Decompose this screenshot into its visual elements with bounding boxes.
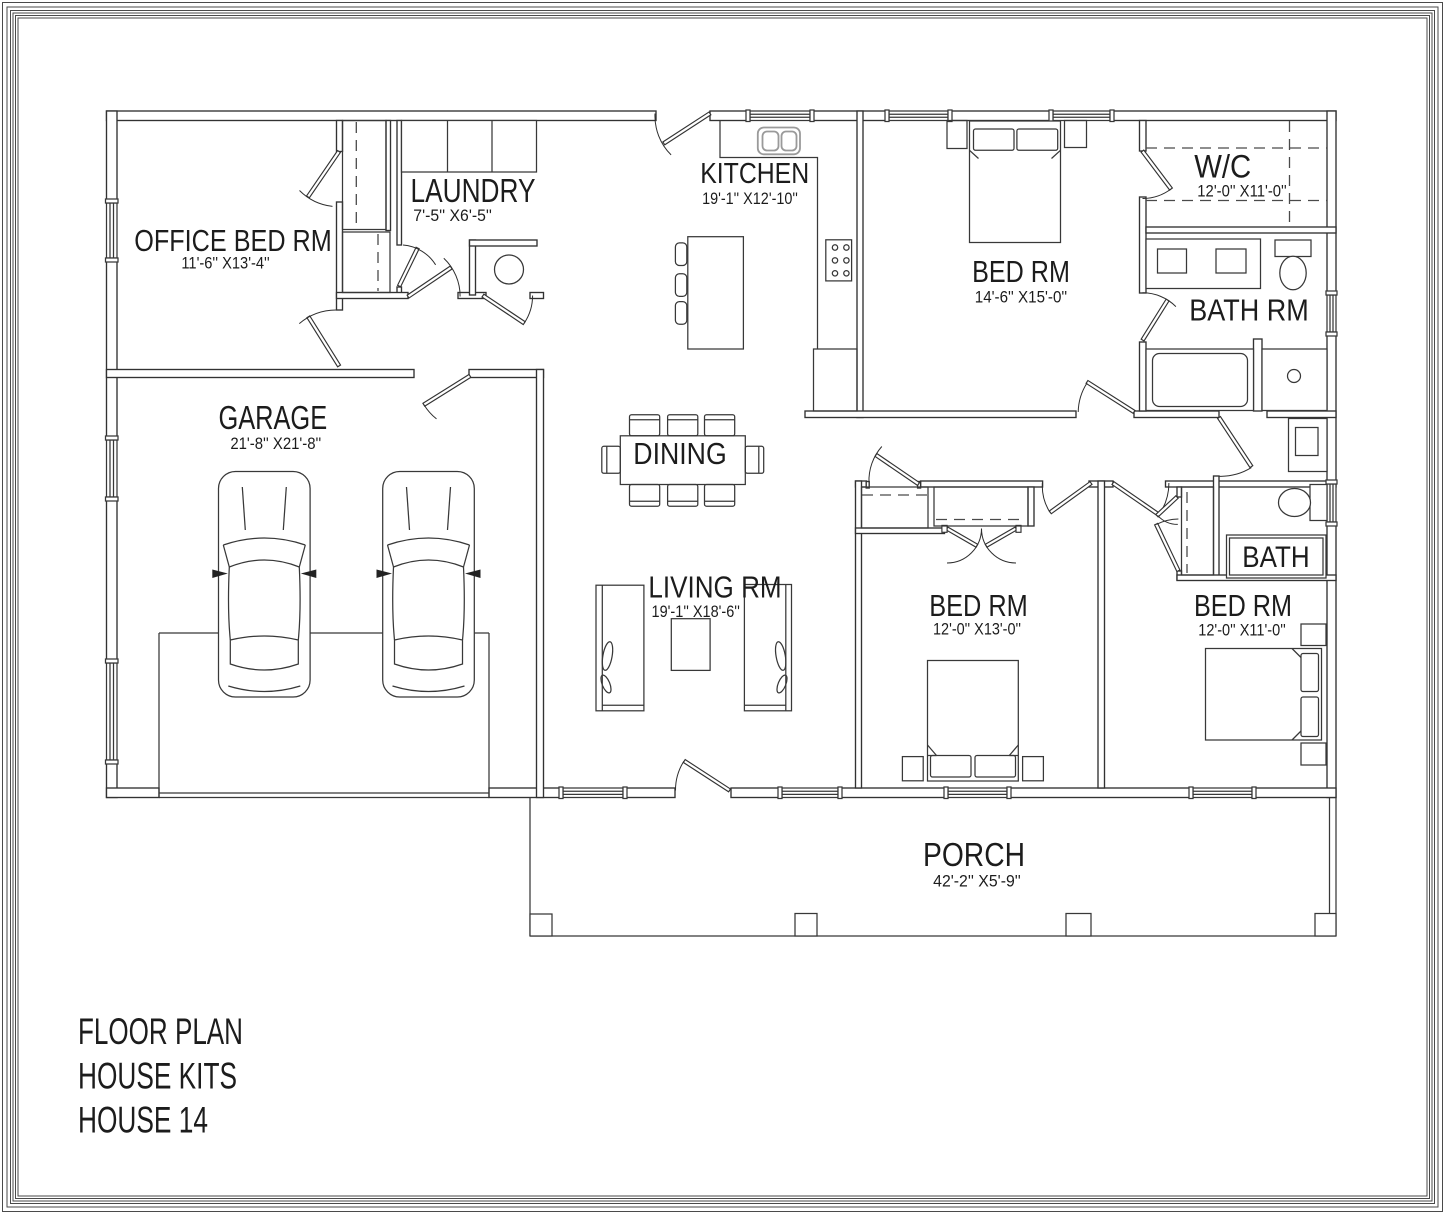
svg-text:12'-0'' X11'-0'': 12'-0'' X11'-0'': [1197, 182, 1286, 201]
svg-text:PORCH: PORCH: [923, 836, 1025, 873]
svg-text:HOUSE 14: HOUSE 14: [78, 1100, 208, 1141]
svg-text:19'-1'' X12'-10'': 19'-1'' X12'-10'': [702, 189, 798, 208]
svg-text:12'-0'' X13'-0'': 12'-0'' X13'-0'': [933, 620, 1021, 639]
svg-text:21'-8'' X21'-8'': 21'-8'' X21'-8'': [230, 434, 321, 453]
svg-text:12'-0'' X11'-0'': 12'-0'' X11'-0'': [1198, 621, 1286, 640]
svg-text:BATH: BATH: [1242, 541, 1309, 574]
svg-text:LIVING RM: LIVING RM: [648, 570, 781, 605]
svg-text:KITCHEN: KITCHEN: [700, 158, 809, 190]
svg-text:7'-5'' X6'-5'': 7'-5'' X6'-5'': [413, 206, 492, 225]
svg-text:BED RM: BED RM: [929, 588, 1028, 623]
svg-text:14'-6'' X15'-0'': 14'-6'' X15'-0'': [975, 288, 1067, 307]
svg-text:BED RM: BED RM: [972, 254, 1070, 289]
svg-text:BED RM: BED RM: [1194, 588, 1292, 623]
svg-text:DINING: DINING: [633, 436, 726, 471]
svg-text:BATH RM: BATH RM: [1189, 293, 1309, 328]
svg-text:11'-6'' X13'-4'': 11'-6'' X13'-4'': [181, 254, 269, 273]
svg-text:FLOOR PLAN: FLOOR PLAN: [78, 1011, 243, 1052]
svg-text:HOUSE KITS: HOUSE KITS: [78, 1056, 237, 1097]
svg-text:GARAGE: GARAGE: [218, 399, 327, 436]
svg-text:W/C: W/C: [1194, 149, 1251, 185]
svg-text:LAUNDRY: LAUNDRY: [411, 172, 536, 209]
svg-text:19'-1'' X18'-6'': 19'-1'' X18'-6'': [652, 602, 740, 621]
svg-text:42'-2'' X5'-9'': 42'-2'' X5'-9'': [933, 872, 1021, 891]
